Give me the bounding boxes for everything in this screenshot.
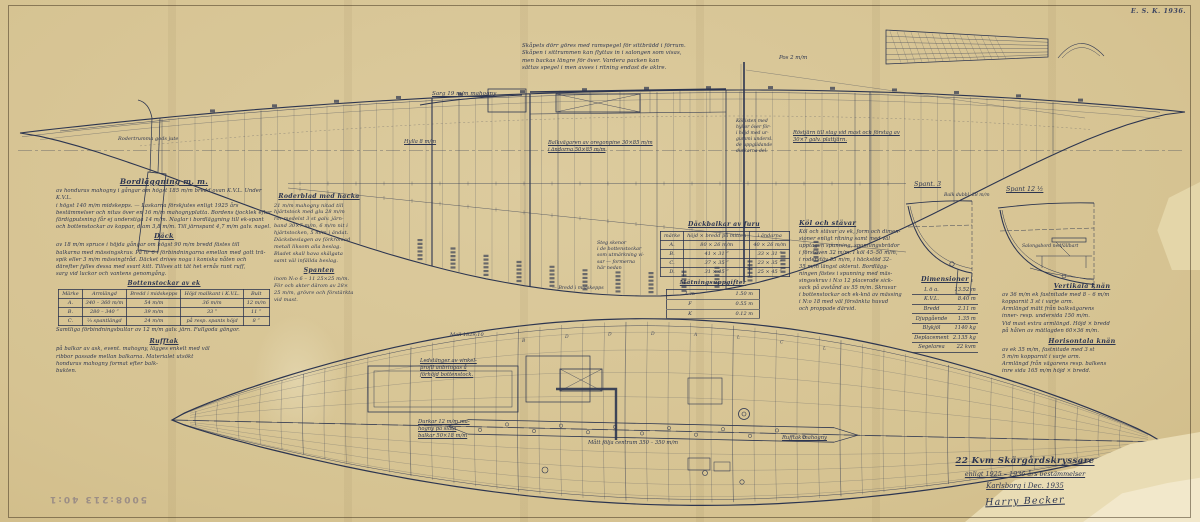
- roderblad-text: 21 m/m mahogny nitad tillhjärtstock med …: [274, 203, 364, 265]
- annotation-rostjarn: Röstjärn till stag vid mast och förstag …: [793, 130, 900, 144]
- annotation-pos: Pos 2 m/m: [779, 55, 807, 62]
- bottenstockar-title: Bottenstockar av ek: [56, 280, 272, 288]
- svg-text:B: B: [521, 338, 526, 344]
- rufftak-heading: Rufftak: [56, 337, 272, 346]
- top-note: Skåpets dörr göres med ramspegel för sit…: [522, 43, 722, 73]
- svg-text:D: D: [650, 331, 655, 337]
- annotation-matt-centrum: Mått följa centrum 350 – 350 m/m: [588, 440, 678, 447]
- annotation-rufftak-label: Rufftak mahogny: [782, 435, 827, 442]
- annotation-sarg: Sarg 19 m/m mahogny: [432, 91, 496, 98]
- dackbalkar-title: Däckbalkar av furu: [660, 221, 788, 230]
- dimensioner-table: L ö a.13.52 mK.V.L.8.40 mBredd2.11 mDjup…: [906, 286, 984, 353]
- horisontala-knan-text: av ek 35 m/m, fastnitade med 3 st5 m/m k…: [1002, 347, 1162, 376]
- accession-stamp: 5008:213 40:1: [48, 494, 147, 504]
- bordlaggning-section: Bordläggning m. m. av honduras mahogny i…: [56, 177, 272, 375]
- svg-text:D: D: [607, 331, 612, 337]
- annotation-balk-dubbel: Balk dubbl. 28 m/m: [944, 193, 990, 199]
- dack-heading: Däck: [56, 232, 272, 241]
- svg-text:D: D: [564, 334, 569, 340]
- kol-stavar-text: Köl och stävar av ek, form och dimen-sio…: [799, 229, 909, 313]
- rufftak-text: på balkar av ask, event. mahogny, lägges…: [56, 346, 272, 375]
- bottenstockar-note: Samtliga förbindningsbultar av 12 m/m ga…: [56, 327, 272, 334]
- drawing-subtitle: enligt 1925 – 1936 års bestämmelser: [910, 470, 1140, 479]
- paper-tear-right: [1148, 182, 1200, 270]
- matning-section: Mätningsuppgifter L m1.50 mF0.55 mK0.12 …: [658, 280, 768, 319]
- roderblad-section: Roderblad med hacka 21 m/m mahogny nitad…: [274, 193, 364, 304]
- drawing-title: 22 Kvm Skärgårdskryssare: [910, 456, 1140, 468]
- spanten-heading: Spanten: [274, 267, 364, 276]
- bordlaggning-text: av honduras mahogny i gångar om högst 18…: [56, 188, 272, 231]
- dack-text: av 18 m/m spruce i höjda gångar om högst…: [56, 242, 272, 278]
- annotation-ledstanger: Ledstänger av vinkel-profil anbringas åf…: [420, 358, 477, 378]
- svg-text:A: A: [693, 332, 698, 338]
- annotation-hylla: Hylla 8 m/m: [404, 139, 436, 146]
- kol-stavar-section: Köl och stävar Köl och stävar av ek, for…: [799, 219, 909, 313]
- annotation-stegskenor: Steg skenori de bottenstockarsom utmärkn…: [597, 241, 644, 272]
- knan-section: Vertikala knän av 36 m/m ek fastnitade m…: [1002, 282, 1162, 375]
- matning-table: L m1.50 mF0.55 mK0.12 m: [658, 289, 768, 319]
- annotation-mast-note: Köllisten medhyllor över för-i höjd med …: [736, 119, 773, 155]
- title-block: 22 Kvm Skärgårdskryssare enligt 1925 – 1…: [910, 456, 1140, 508]
- annotation-spant3: Spant. 3: [914, 180, 941, 188]
- annotation-salongsbord: Salongsbord nedfällbart: [1022, 244, 1078, 250]
- vertikala-knan-heading: Vertikala knän: [1002, 282, 1162, 291]
- svg-text:C: C: [780, 339, 784, 345]
- dimensioner-title: Dimensioner: [906, 276, 984, 285]
- dackbalkar-section: Däckbalkar av furu märkehöjd × bredd på …: [660, 221, 788, 277]
- annotation-spant12: Spant 12 ½: [1006, 185, 1043, 193]
- spanten-text: inom N:o 6 – 11 25×25 m/m.För och akter …: [274, 276, 364, 304]
- vertikala-knan-text: av 36 m/m ek fastnitade med 8 – 6 m/mkop…: [1002, 292, 1162, 335]
- annotation-durkar: Durkar 12 m/m ma-hogny på slätabalkar 50…: [418, 419, 470, 439]
- annotation-rodertrumma: Rodertrumma gods jute: [118, 136, 178, 143]
- svg-text:L: L: [822, 346, 826, 352]
- place-date: Karlsborg i Dec. 1935: [910, 482, 1140, 492]
- dimensioner-section: Dimensioner L ö a.13.52 mK.V.L.8.40 mBre…: [906, 276, 984, 353]
- blueprint-sheet: BDDDALCL E. S. K. 1936. Skåpets dörr gör…: [0, 0, 1200, 522]
- top-note-text: Skåpets dörr göres med ramspegel för sit…: [522, 43, 722, 73]
- dackbalkar-table: märkehöjd × bredd på mitteni ändarnaA.80…: [660, 231, 788, 277]
- annotation-mall: Mall 1829:10: [450, 332, 484, 339]
- bordlaggning-heading: Bordläggning m. m.: [56, 177, 272, 187]
- roderblad-heading: Roderblad med hacka: [274, 193, 364, 202]
- matning-title: Mätningsuppgifter: [658, 280, 768, 288]
- spar-detail-drawing: [886, 30, 1104, 64]
- annotation-balkvagare: Balkvägaren av oregonpine 30×85 m/m i än…: [548, 140, 653, 154]
- kol-stavar-heading: Köl och stävar: [799, 219, 909, 228]
- designer-signature: Harry Becker: [910, 491, 1140, 512]
- horisontala-knan-heading: Horisontala knän: [1002, 337, 1162, 346]
- registry-stamp: E. S. K. 1936.: [1131, 7, 1186, 15]
- svg-text:L: L: [736, 335, 740, 341]
- annotation-bredd-midskepps: — Bredd i midskepps: [552, 286, 604, 292]
- bottenstockar-table: MärkeArmlängdBredd i midskeppsHöjd mallk…: [56, 289, 272, 326]
